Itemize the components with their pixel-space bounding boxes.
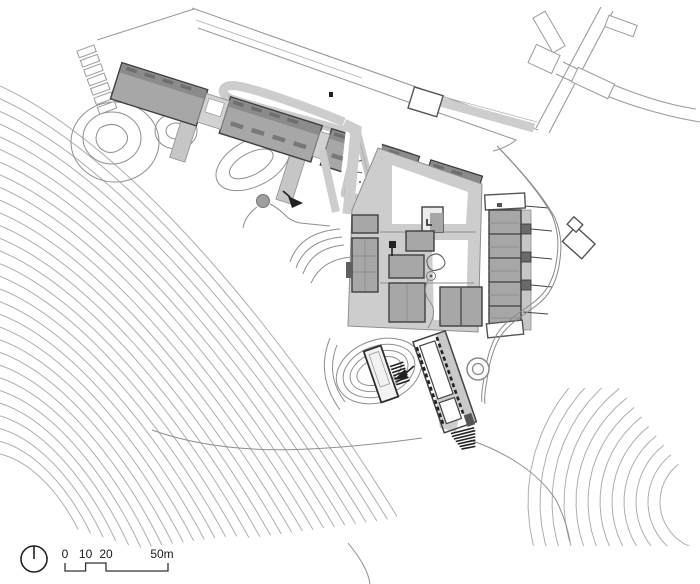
site-plan-drawing: 0 10 20 50m — [0, 0, 700, 584]
contour-line — [660, 464, 700, 549]
scale-bar: 0 10 20 50m — [62, 547, 174, 571]
pavilion-a — [406, 231, 434, 251]
west-pavilion-1 — [352, 215, 378, 233]
southeast-twin-pavilion — [440, 287, 482, 326]
site-plan-page: 0 10 20 50m — [0, 0, 700, 584]
southeast-hill-contours — [528, 360, 700, 584]
contour-line — [0, 441, 101, 558]
amphitheatre — [324, 327, 431, 415]
contour-line — [0, 124, 366, 522]
court-pavilion-with-l-court — [422, 207, 443, 232]
scale-label-50m: 50m — [150, 547, 173, 561]
terrace-arcs — [290, 229, 352, 283]
contour-line — [576, 398, 685, 584]
north-white-slab — [408, 87, 443, 117]
contour-line — [0, 111, 377, 521]
south-pavilion — [389, 283, 425, 322]
contour-line — [0, 251, 260, 537]
contour-line — [0, 276, 239, 539]
contour-line — [0, 137, 356, 524]
contour-line — [552, 379, 681, 584]
row-housing — [485, 193, 552, 338]
contour-line — [648, 455, 698, 561]
scale-label-20: 20 — [99, 547, 113, 561]
scale-label-10: 10 — [79, 547, 93, 561]
contour-line — [0, 162, 334, 527]
shoreline — [152, 430, 570, 584]
contour-line — [636, 445, 696, 573]
detached-hut — [556, 217, 599, 259]
road-marker — [329, 92, 333, 97]
contour-line — [528, 360, 677, 584]
contour-line — [0, 378, 154, 551]
round-pool — [467, 358, 489, 380]
contour-line — [564, 389, 683, 584]
scale-label-0: 0 — [62, 547, 69, 561]
context-buildings — [528, 11, 637, 99]
contour-line — [540, 370, 679, 584]
contour-line — [624, 436, 693, 584]
deck-building — [413, 331, 484, 455]
north-arrow-icon — [21, 546, 47, 572]
amphitheatre-platform — [364, 346, 399, 403]
contour-line — [600, 417, 689, 584]
stepped-terrace-strip — [77, 45, 117, 114]
contour-line — [588, 407, 687, 584]
